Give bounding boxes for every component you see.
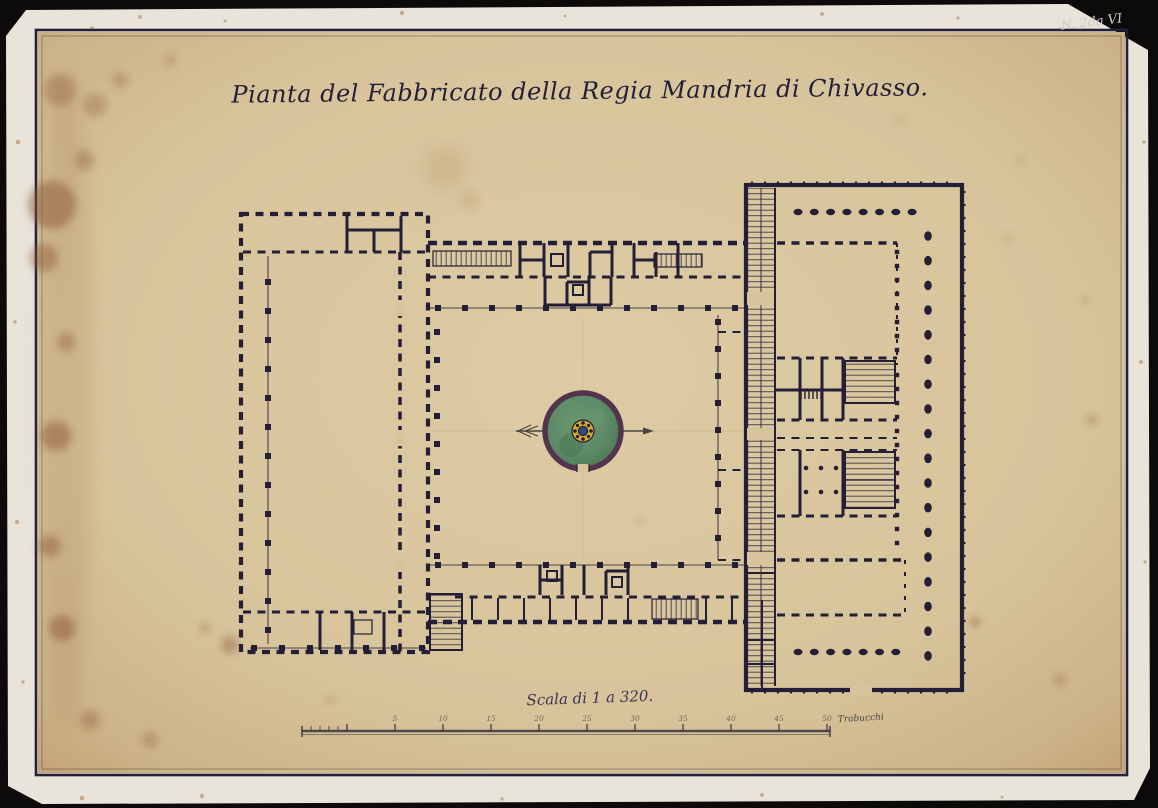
svg-text:15: 15 xyxy=(486,714,496,723)
svg-text:5: 5 xyxy=(393,714,398,723)
svg-text:20: 20 xyxy=(533,714,544,723)
svg-text:40: 40 xyxy=(725,714,736,723)
north-portico-hatch-left xyxy=(433,251,511,266)
svg-text:45: 45 xyxy=(773,714,784,723)
svg-text:30: 30 xyxy=(630,714,640,723)
scanned-plan-drawing: Pianta del Fabbricato della Regia Mandri… xyxy=(0,0,1158,808)
svg-text:50: 50 xyxy=(822,714,832,723)
svg-text:25: 25 xyxy=(581,714,592,723)
svg-text:35: 35 xyxy=(678,714,688,723)
fountain-jet xyxy=(578,426,587,435)
fountain-inlet-notch xyxy=(577,464,589,473)
svg-text:10: 10 xyxy=(438,714,448,723)
south-stair-hatch xyxy=(652,599,698,619)
